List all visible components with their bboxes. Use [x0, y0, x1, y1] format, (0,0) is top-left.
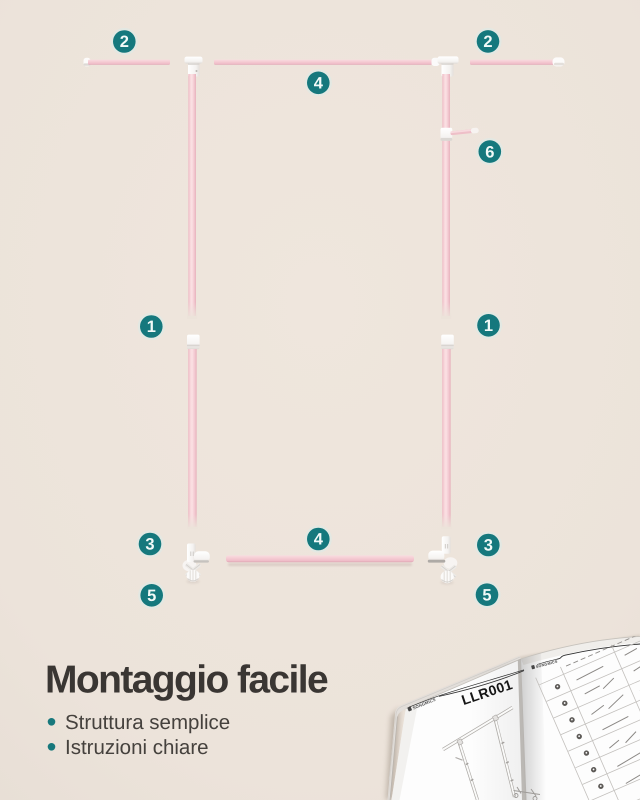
svg-text:5: 5	[147, 587, 156, 605]
svg-text:Istruzioni chiare: Istruzioni chiare	[65, 736, 209, 759]
svg-text:5: 5	[482, 586, 491, 604]
svg-text:1: 1	[147, 318, 156, 336]
svg-text:3: 3	[145, 536, 154, 554]
svg-text:1: 1	[484, 317, 493, 335]
svg-text:4: 4	[314, 75, 324, 93]
svg-text:Montaggio facile: Montaggio facile	[45, 659, 328, 702]
svg-text:4: 4	[314, 531, 324, 549]
svg-text:2: 2	[483, 33, 492, 51]
svg-text:3: 3	[484, 537, 493, 555]
svg-text:2: 2	[120, 33, 129, 51]
svg-text:Struttura semplice: Struttura semplice	[65, 711, 230, 734]
svg-text:6: 6	[485, 143, 494, 161]
